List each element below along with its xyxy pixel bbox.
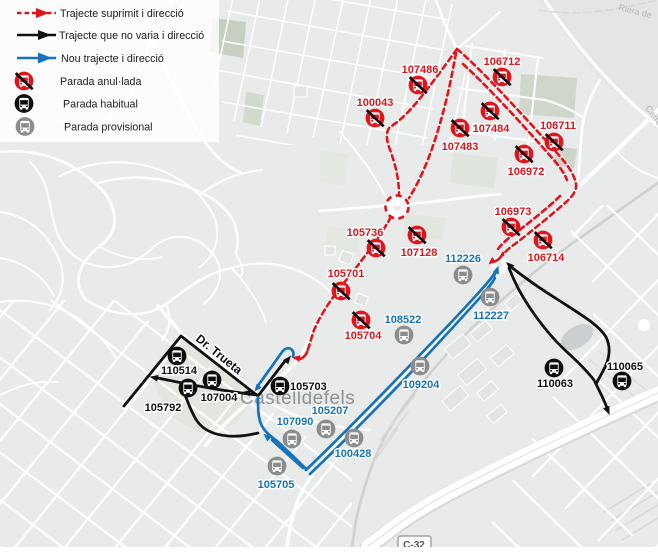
svg-text:112226: 112226 xyxy=(445,253,481,265)
svg-text:105736: 105736 xyxy=(347,227,384,239)
svg-text:106711: 106711 xyxy=(540,120,576,132)
svg-text:Trajecte que no varia i direcc: Trajecte que no varia i direcció xyxy=(59,30,204,42)
svg-text:110065: 110065 xyxy=(607,361,643,373)
svg-text:105703: 105703 xyxy=(290,381,327,393)
svg-text:105792: 105792 xyxy=(145,402,182,414)
svg-text:110514: 110514 xyxy=(161,365,198,377)
svg-text:105704: 105704 xyxy=(345,330,383,342)
svg-text:107004: 107004 xyxy=(201,392,239,404)
svg-text:108522: 108522 xyxy=(385,314,422,326)
svg-text:110063: 110063 xyxy=(537,378,573,390)
svg-text:C-32: C-32 xyxy=(403,540,425,547)
svg-text:Parada habitual: Parada habitual xyxy=(63,99,138,111)
svg-text:Nou trajecte i direcció: Nou trajecte i direcció xyxy=(61,53,164,65)
svg-text:106712: 106712 xyxy=(484,56,521,68)
svg-text:107128: 107128 xyxy=(401,247,438,259)
svg-text:Parada provisional: Parada provisional xyxy=(64,122,153,134)
svg-text:105705: 105705 xyxy=(258,479,295,491)
svg-text:107486: 107486 xyxy=(402,64,439,76)
svg-text:100428: 100428 xyxy=(335,448,372,460)
svg-text:107090: 107090 xyxy=(277,416,314,428)
svg-text:105701: 105701 xyxy=(328,268,365,280)
svg-text:106714: 106714 xyxy=(528,252,566,264)
svg-text:105207: 105207 xyxy=(312,405,349,417)
svg-text:107483: 107483 xyxy=(442,141,479,153)
svg-text:106973: 106973 xyxy=(495,206,532,218)
svg-text:Parada anul·lada: Parada anul·lada xyxy=(60,76,141,88)
svg-text:107484: 107484 xyxy=(473,123,511,135)
svg-text:109204: 109204 xyxy=(403,379,441,391)
svg-text:112227: 112227 xyxy=(473,310,509,322)
svg-text:100043: 100043 xyxy=(357,97,394,109)
svg-text:Trajecte suprimit i direcció: Trajecte suprimit i direcció xyxy=(60,8,184,20)
svg-text:106972: 106972 xyxy=(508,166,545,178)
